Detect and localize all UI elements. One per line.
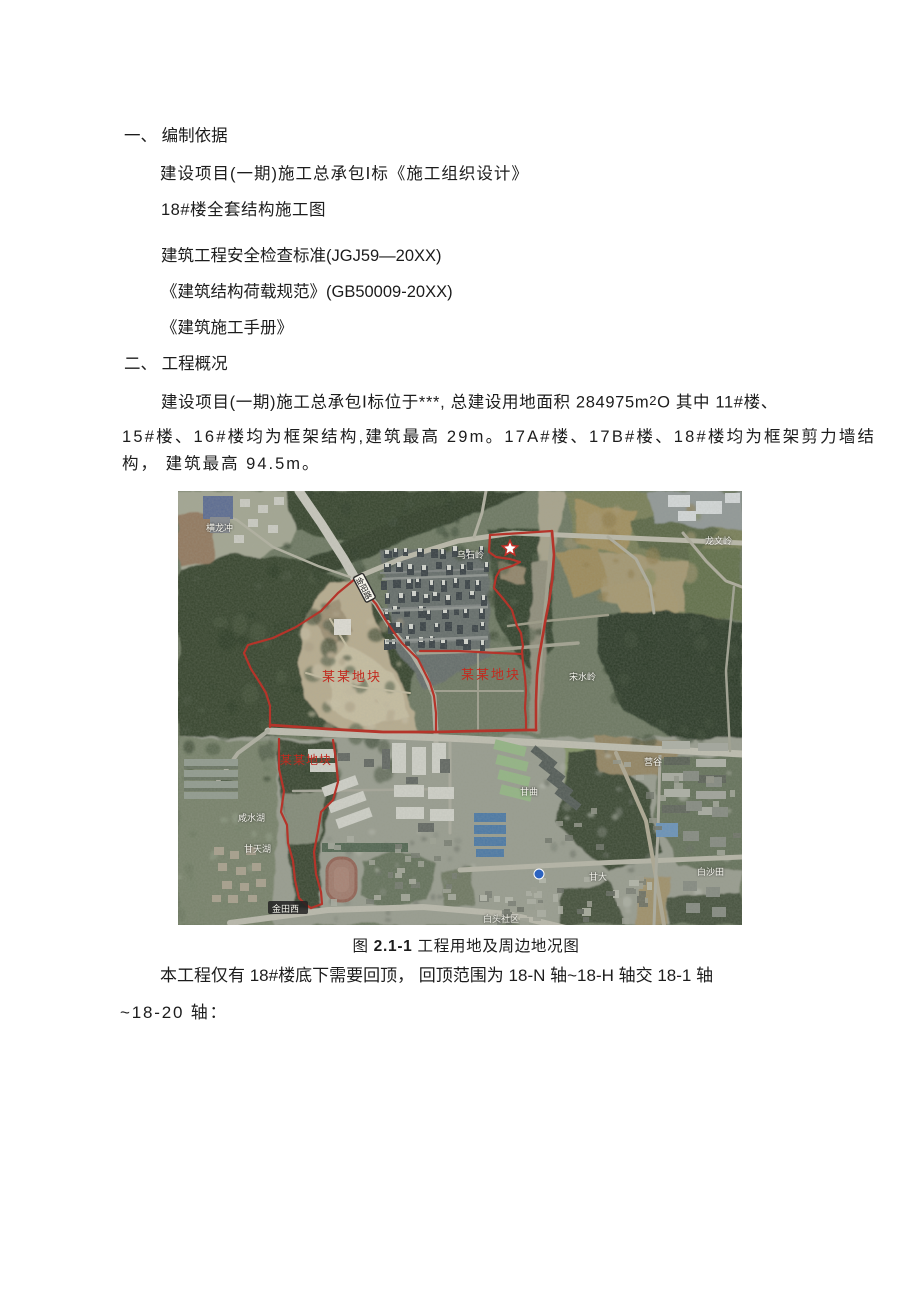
svg-text:龙文岭: 龙文岭	[705, 535, 732, 546]
svg-text:横龙冲: 横龙冲	[206, 522, 233, 533]
svg-text:咸水湖: 咸水湖	[238, 812, 265, 823]
svg-text:甘曲: 甘曲	[520, 786, 538, 797]
svg-text:营谷: 营谷	[644, 756, 662, 767]
svg-text:乌石岭: 乌石岭	[457, 549, 484, 560]
svg-text:白头社区: 白头社区	[483, 913, 519, 924]
svg-text:金田西: 金田西	[272, 903, 299, 914]
svg-text:甘天湖: 甘天湖	[244, 843, 271, 854]
svg-text:某某地块: 某某地块	[280, 753, 332, 767]
svg-text:甘大: 甘大	[589, 871, 607, 882]
svg-text:宋水岭: 宋水岭	[569, 671, 596, 682]
svg-text:白沙田: 白沙田	[697, 866, 724, 877]
svg-text:某某地块: 某某地块	[322, 669, 382, 684]
svg-text:某某地块: 某某地块	[461, 667, 521, 682]
